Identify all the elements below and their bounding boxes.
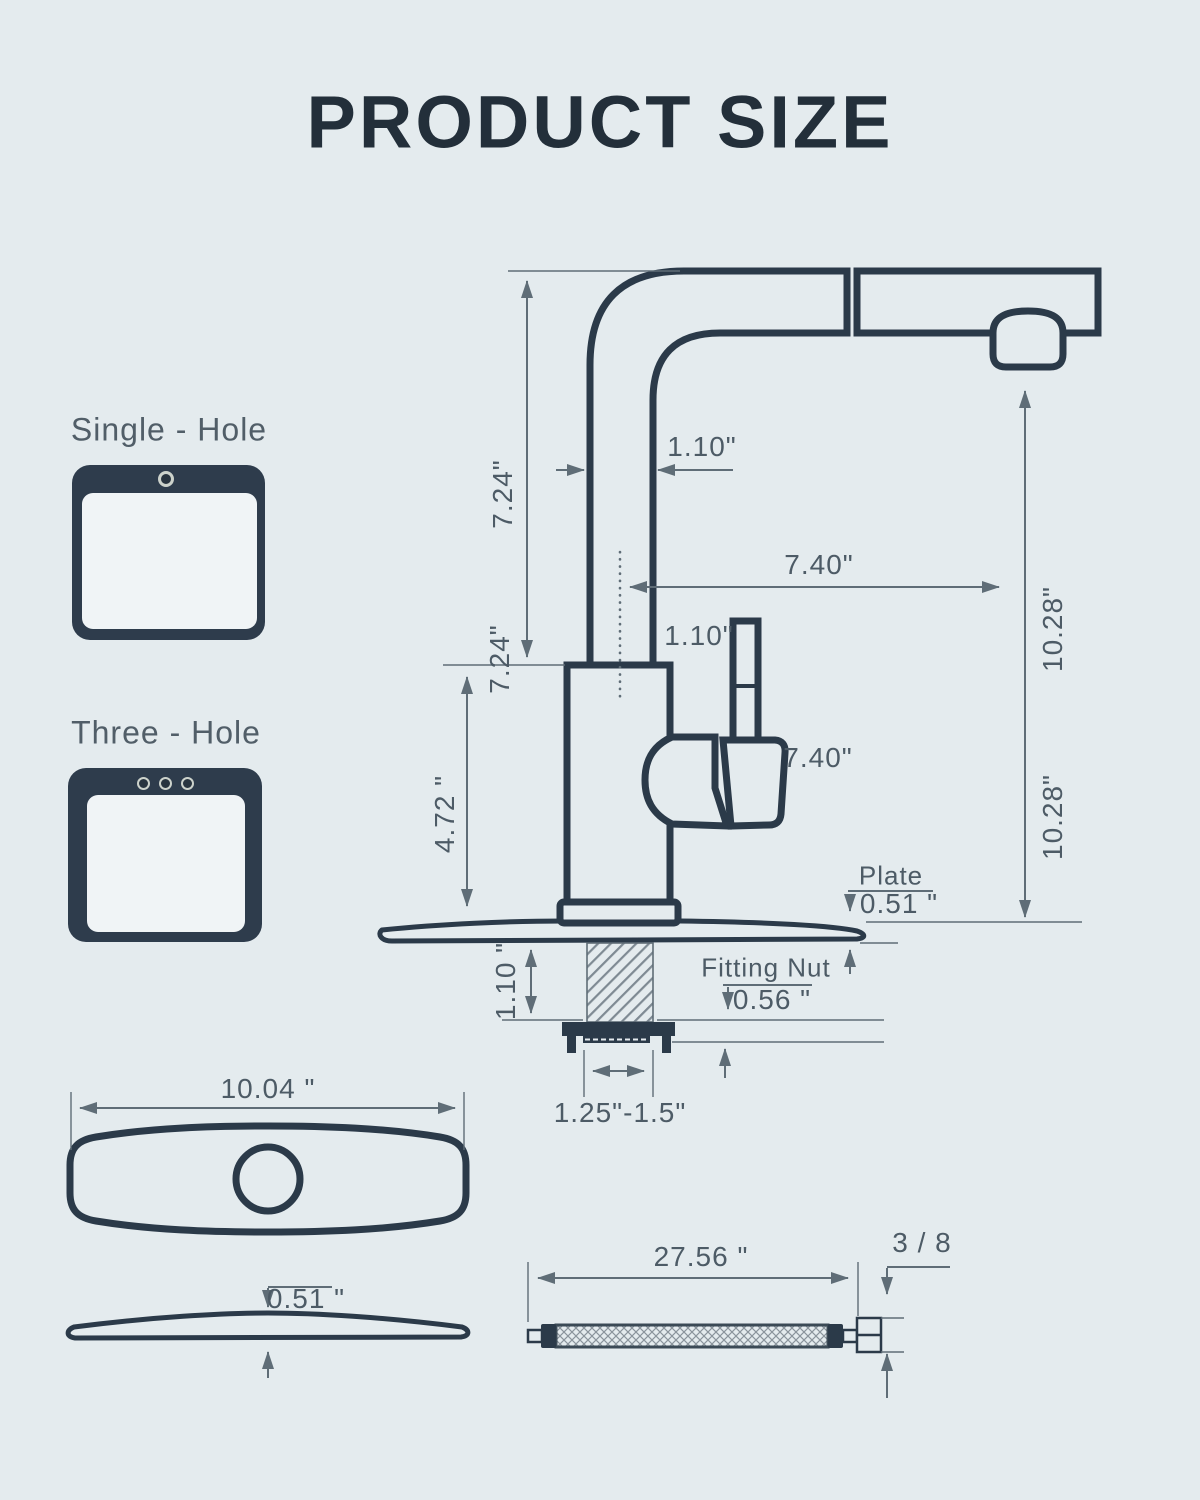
dim-handle-length: 7.40" xyxy=(783,742,852,774)
dim-spout-height-upper: 7.24" xyxy=(487,459,519,528)
spray-nozzle xyxy=(993,311,1063,367)
dim-plate-thickness: 0.51 " xyxy=(860,888,938,920)
dim-shank-height: 1.10 " xyxy=(490,942,522,1020)
hose-left-ferrule xyxy=(541,1324,556,1348)
diagram-canvas xyxy=(0,0,1200,1500)
deck-plate-top-view xyxy=(70,1126,466,1232)
handle-hub xyxy=(645,737,727,826)
dim-body-height: 4.72 " xyxy=(429,775,461,853)
dim-outlet-height-upper: 10.28" xyxy=(1037,586,1069,672)
product-size-infographic: PRODUCT SIZE Single - Hole Three - Hole xyxy=(0,0,1200,1500)
dim-outlet-height-lower: 10.28" xyxy=(1037,774,1069,860)
dim-deck-plate-width: 10.04 " xyxy=(221,1073,316,1105)
hose-right-nipple xyxy=(843,1330,857,1342)
hose-right-ferrule xyxy=(828,1324,843,1348)
handle-grip xyxy=(723,740,785,826)
handle-lever xyxy=(733,621,758,740)
supply-hose-drawing xyxy=(528,1318,881,1352)
deck-plate-side-outline xyxy=(68,1313,468,1338)
deck-plate-hole xyxy=(236,1147,300,1211)
hose-left-nipple xyxy=(528,1330,542,1342)
dim-fitting-nut-size: 0.56 " xyxy=(733,984,811,1016)
fitting-nut-leg xyxy=(567,1036,576,1053)
dim-spout-tube-width: 1.10" xyxy=(667,431,736,463)
dim-handle-lever-width: 1.10" xyxy=(664,620,733,652)
faucet-base-flange xyxy=(560,902,678,923)
dim-hose-length: 27.56 " xyxy=(654,1241,749,1273)
dim-spout-height-lower: 7.24" xyxy=(484,624,516,693)
hose-braided-tube xyxy=(556,1325,828,1347)
dim-deck-plate-thickness: 0.51 " xyxy=(267,1283,345,1315)
fitting-nut-leg xyxy=(662,1036,671,1053)
dim-hose-thread-size: 3 / 8 xyxy=(892,1227,951,1259)
dim-spout-reach: 7.40" xyxy=(784,549,853,581)
mounting-shank xyxy=(587,943,653,1022)
dim-mount-hole-diameter: 1.25"-1.5" xyxy=(554,1097,687,1129)
fitting-nut-label: Fitting Nut xyxy=(701,953,831,984)
plate-label: Plate xyxy=(859,861,923,892)
deck-plate-side-view xyxy=(68,1313,468,1338)
fitting-nut xyxy=(562,1022,675,1036)
